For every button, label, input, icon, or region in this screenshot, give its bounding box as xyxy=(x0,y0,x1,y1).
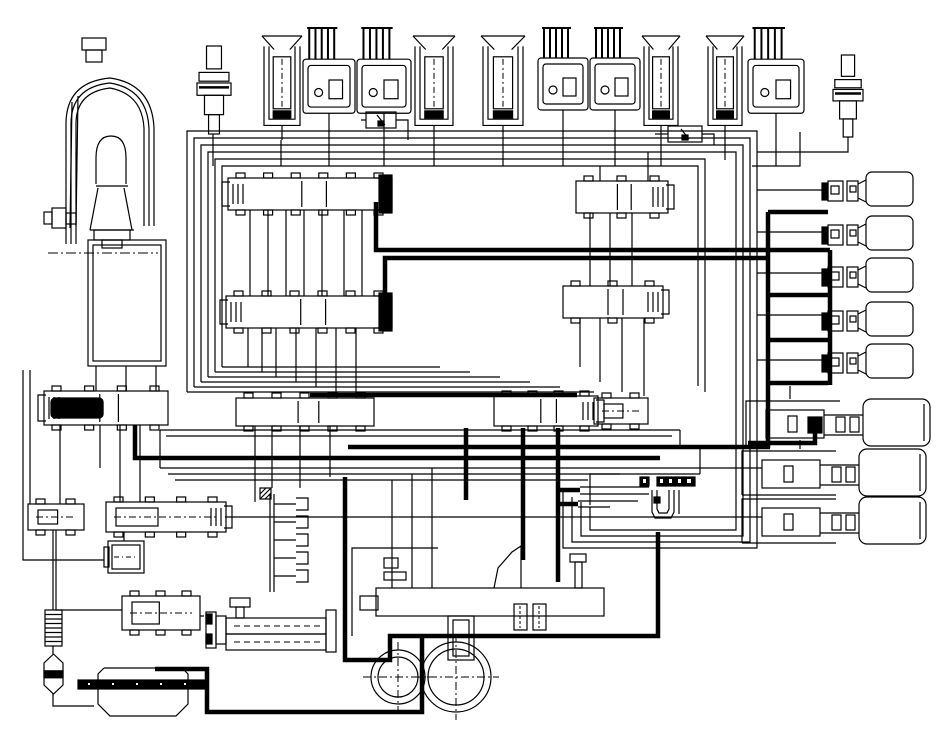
hydraulic-lines-thin xyxy=(23,120,848,706)
band-servo-2 xyxy=(762,449,926,496)
cooler-filter xyxy=(44,654,63,694)
clutch-actuator-1 xyxy=(822,172,913,206)
bypass-valve xyxy=(28,499,84,535)
torque-converter xyxy=(66,38,154,248)
modulator-valve xyxy=(236,393,374,431)
case-chamber xyxy=(88,240,166,366)
damper-piston xyxy=(104,541,144,573)
accumulator-piston xyxy=(594,393,648,429)
diagram-canvas: Automatic transmission hydraulic control… xyxy=(0,0,950,735)
shift-valve-1 xyxy=(222,173,392,215)
shift-valve-2 xyxy=(220,291,392,333)
shift-solenoid-3 xyxy=(538,28,588,128)
pressure-regulator-valve xyxy=(38,386,168,430)
shift-solenoid-2 xyxy=(357,28,411,132)
check-valve-cluster xyxy=(640,477,695,518)
orifice-2 xyxy=(668,126,702,142)
manual-detent xyxy=(260,488,308,592)
hydraulic-circuit-diagram: Automatic transmission hydraulic control… xyxy=(0,0,950,735)
relay-valve-1 xyxy=(576,176,674,218)
accumulator-2 xyxy=(413,36,455,140)
oil-pan-strainer xyxy=(78,668,206,716)
clutch-actuator-2 xyxy=(822,216,913,250)
relief-valve xyxy=(122,591,200,635)
hydraulic-lines-thick xyxy=(135,202,830,712)
band-servo-1 xyxy=(766,399,930,446)
control-valve xyxy=(106,497,232,537)
manual-valve-body xyxy=(360,546,604,660)
shift-solenoid-5 xyxy=(748,28,804,132)
accumulator-4 xyxy=(642,36,680,140)
pressure-switch-2 xyxy=(833,55,863,137)
band-servo-3 xyxy=(762,497,926,544)
orifice-1 xyxy=(366,112,396,128)
clutch-actuator-3 xyxy=(822,258,913,292)
accumulator-1 xyxy=(262,36,302,140)
oil-pump-assembly xyxy=(206,598,336,652)
clutch-actuator-4 xyxy=(822,302,913,336)
shift-solenoid-1 xyxy=(303,28,355,132)
accumulator-3 xyxy=(481,36,525,140)
oil-cooler xyxy=(45,610,62,646)
clutch-actuator-5 xyxy=(822,344,913,378)
junction-blocks xyxy=(808,417,822,433)
shift-solenoid-4 xyxy=(590,28,640,128)
pressure-switch-1 xyxy=(197,46,231,134)
pump-driven-gear xyxy=(413,634,499,720)
relay-valve-2 xyxy=(563,281,669,323)
accumulator-5 xyxy=(706,36,744,140)
